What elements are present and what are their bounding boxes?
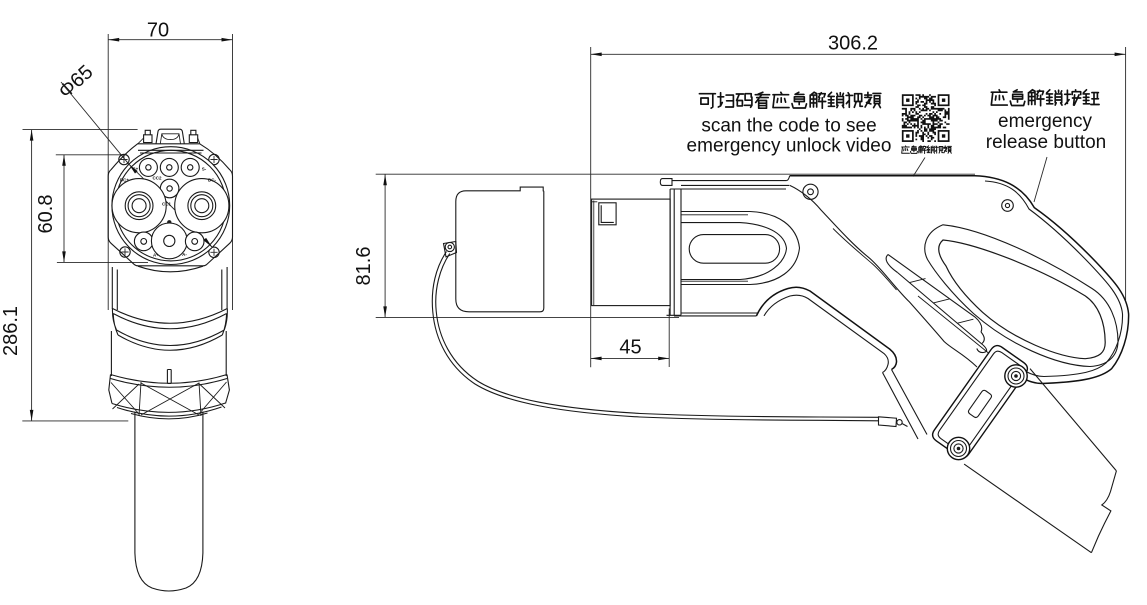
- svg-text:DC-: DC-: [208, 178, 216, 183]
- svg-text:Φ65: Φ65: [54, 61, 97, 103]
- svg-text:S+: S+: [133, 167, 139, 172]
- svg-text:CC1: CC1: [162, 202, 171, 207]
- svg-text:emergency unlock video: emergency unlock video: [687, 136, 892, 157]
- svg-text:S-: S-: [202, 167, 207, 172]
- svg-text:scan the code to see: scan the code to see: [701, 116, 876, 137]
- svg-text:emergency: emergency: [998, 111, 1092, 132]
- svg-text:306.2: 306.2: [828, 33, 878, 55]
- svg-text:81.6: 81.6: [353, 247, 375, 286]
- svg-text:60.8: 60.8: [35, 195, 57, 234]
- svg-text:70: 70: [147, 20, 169, 42]
- svg-text:CC2: CC2: [152, 176, 161, 181]
- svg-text:286.1: 286.1: [0, 306, 22, 356]
- svg-text:A-: A-: [182, 252, 187, 257]
- svg-text:release button: release button: [986, 132, 1106, 153]
- svg-text:45: 45: [619, 337, 641, 359]
- svg-text:DC+: DC+: [120, 178, 129, 183]
- svg-text:A+: A+: [153, 253, 159, 258]
